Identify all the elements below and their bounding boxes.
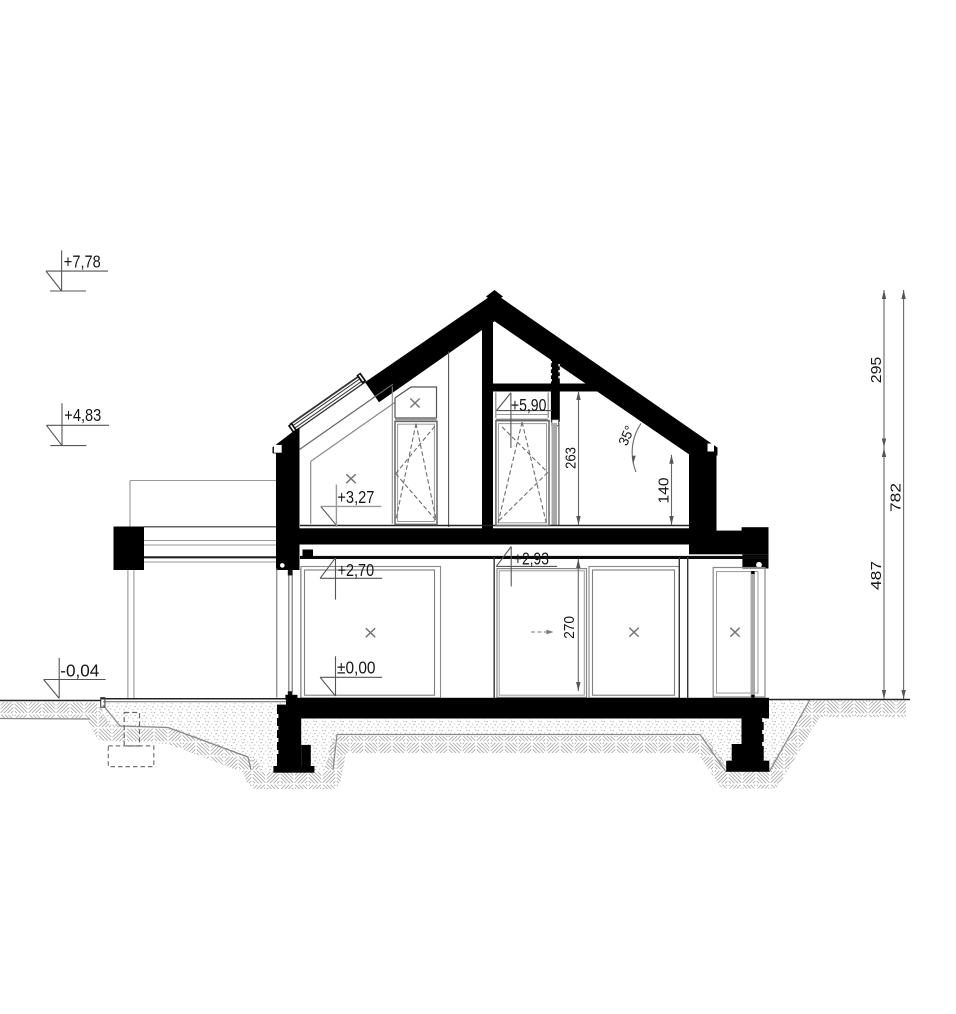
svg-text:+4,83: +4,83	[64, 405, 101, 425]
svg-text:263: 263	[563, 447, 580, 469]
svg-text:270: 270	[561, 616, 578, 639]
svg-text:140: 140	[656, 478, 673, 504]
svg-text:+5,90: +5,90	[511, 395, 547, 415]
svg-text:+3,27: +3,27	[337, 487, 374, 507]
svg-text:295: 295	[868, 357, 885, 384]
svg-text:487: 487	[868, 561, 885, 590]
svg-text:-0,04: -0,04	[60, 661, 99, 681]
svg-text:782: 782	[888, 483, 905, 512]
svg-text:+2,93: +2,93	[514, 548, 549, 568]
svg-text:+2,70: +2,70	[338, 560, 375, 580]
svg-text:+7,78: +7,78	[64, 252, 101, 272]
svg-text:±0,00: ±0,00	[337, 658, 376, 678]
